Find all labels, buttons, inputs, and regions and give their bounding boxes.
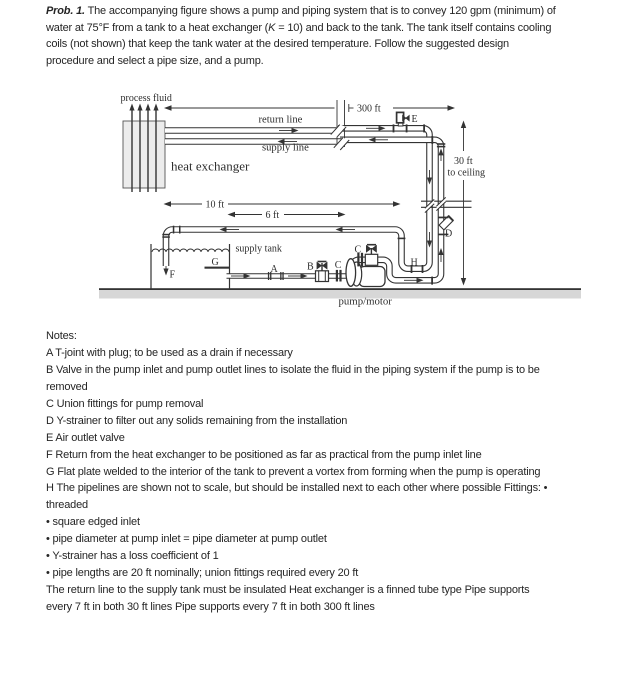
svg-text:300 ft: 300 ft <box>357 104 381 115</box>
svg-text:10 ft: 10 ft <box>206 200 225 211</box>
svg-text:C: C <box>355 245 362 256</box>
svg-text:supply line: supply line <box>262 142 309 153</box>
svg-text:pump/motor: pump/motor <box>339 296 393 308</box>
svg-text:heat exchanger: heat exchanger <box>171 159 250 174</box>
svg-text:E: E <box>412 114 418 125</box>
svg-text:C: C <box>335 260 342 271</box>
svg-text:H: H <box>411 258 418 269</box>
svg-text:D: D <box>445 229 452 240</box>
svg-text:F: F <box>170 270 176 281</box>
svg-text:A: A <box>271 264 279 275</box>
svg-text:30 ft: 30 ft <box>454 156 473 167</box>
svg-text:B: B <box>307 262 314 273</box>
svg-text:supply tank: supply tank <box>236 244 282 255</box>
svg-text:to ceiling: to ceiling <box>448 168 486 179</box>
svg-text:return line: return line <box>259 115 303 126</box>
svg-text:G: G <box>212 257 219 268</box>
svg-text:process fluid: process fluid <box>121 93 172 104</box>
svg-text:6 ft: 6 ft <box>266 210 280 221</box>
